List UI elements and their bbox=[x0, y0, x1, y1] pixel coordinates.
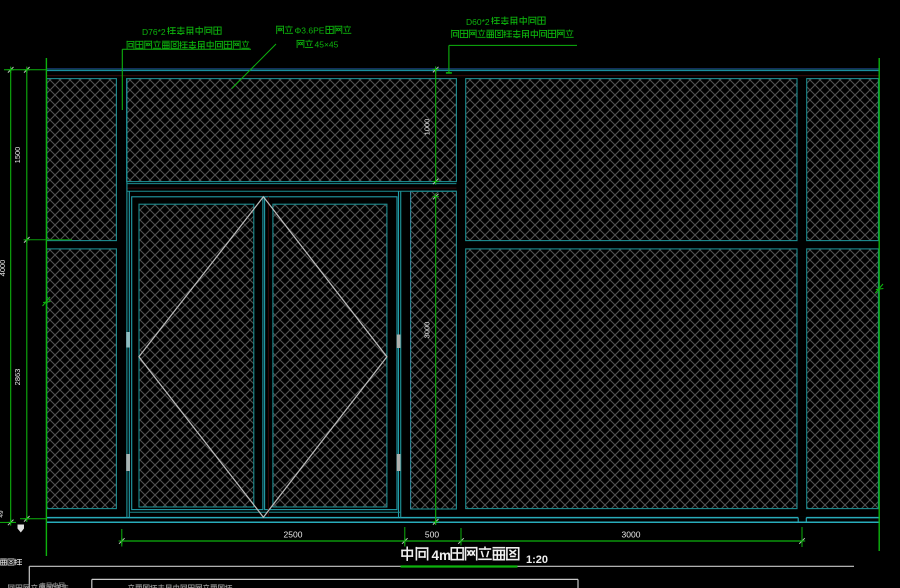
svg-text:4m: 4m bbox=[432, 548, 452, 563]
svg-text:Φ3.6PE: Φ3.6PE bbox=[295, 26, 325, 36]
svg-text:4000: 4000 bbox=[0, 260, 7, 277]
svg-text:1500: 1500 bbox=[13, 147, 22, 164]
svg-text:3000: 3000 bbox=[422, 322, 431, 339]
svg-text:2500: 2500 bbox=[284, 530, 303, 540]
svg-text:1:20: 1:20 bbox=[526, 554, 548, 566]
svg-text:3000: 3000 bbox=[622, 530, 641, 540]
svg-text:500: 500 bbox=[425, 530, 439, 540]
svg-text:49: 49 bbox=[0, 510, 5, 518]
svg-text:D60*2: D60*2 bbox=[466, 17, 490, 27]
svg-text:45×45: 45×45 bbox=[315, 40, 339, 50]
svg-text:2863: 2863 bbox=[13, 369, 22, 386]
svg-text:D76*2: D76*2 bbox=[142, 27, 166, 37]
svg-text:1000: 1000 bbox=[422, 119, 431, 136]
